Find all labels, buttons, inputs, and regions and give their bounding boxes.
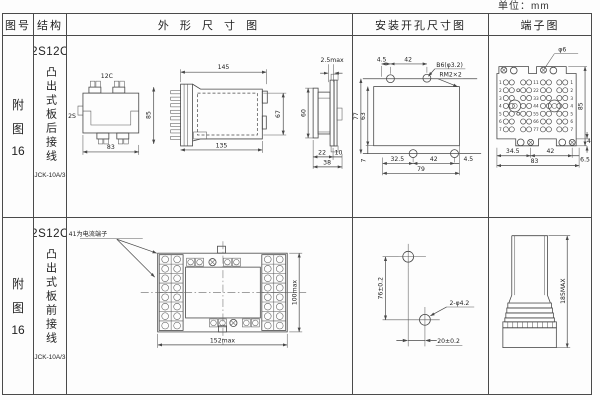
terminal-row-number-right: 6 [570,119,573,125]
terminal-hole [521,79,526,84]
relay-profile-view: 185MAX [503,236,570,348]
dim-185max: 185MAX [560,278,567,303]
terminal-hole [509,87,514,92]
terminal-hole [540,95,545,100]
terminal-row-number-left: 2 [499,87,502,93]
fig-char: 图 [12,299,24,316]
terminal-hole [527,95,532,100]
terminal-comb [508,322,553,328]
terminal-pair-number: 55 [533,111,539,117]
terminal-row-number-left: 6 [499,119,502,125]
terminal-hole [509,79,514,84]
terminal-hole [563,118,568,123]
dim-32.5: 32.5 [391,155,405,162]
terminal-hole [509,111,514,116]
outline-row1-svg: 12C 2S 83 85 145 [67,36,352,218]
terminal-pair-number: 44 [533,103,539,109]
outline-drawing-row1: 12C 2S 83 85 145 [67,36,353,218]
terminal-hole [527,79,532,84]
callout-thread: RM2×2 [439,71,461,78]
terminal-hole [527,103,532,108]
fig-char: 附 [12,275,24,292]
datasheet-page: 单位：mm 图号 结构 外 形 尺 寸 图 安装开孔尺寸图 端子图 附 图 16… [0,0,600,400]
note-current-terminals: 31、41为电流端子 [67,230,107,238]
dim-63: 63 [360,112,367,120]
terminal-hole [540,118,545,123]
terminal-row-number-left: 4 [499,103,502,109]
dim-width-83: 83 [107,143,115,150]
terminal-hole [563,87,568,92]
terminal-hole [509,103,514,108]
terminal-hole [557,103,562,108]
header-structure: 结构 [34,14,67,36]
terminal-row-number-right: 5 [570,111,573,117]
terminal-hole [503,103,508,108]
mounting-holes-drawing: 76±0.2 2-φ4.2 20±0.2 [378,244,475,346]
relay-rear-view: 2.5max 60 22 10 3 [301,57,344,169]
terminal-hole [521,111,526,116]
terminal-hole [540,126,545,131]
terminal-hole [527,118,532,123]
dim-42-top: 42 [404,56,412,63]
terminal-hole [509,118,514,123]
header-fig-no: 图号 [3,14,34,36]
terminal-row1-svg: 1111222233334444555566667777 φ6 85 4 34.… [489,36,591,218]
terminal-hole [557,126,562,131]
terminal-hole [546,126,551,131]
terminal-pair-number: 22 [533,87,539,93]
terminal-hole [557,95,562,100]
header-outline: 外 形 尺 寸 图 [67,14,353,36]
terminal-hole [503,79,508,84]
terminal-hole [527,111,532,116]
dim-2.5max: 2.5max [320,57,344,64]
terminal-hole [563,79,568,84]
terminal-pair-number: 77 [533,127,539,133]
terminal-hole [557,111,562,116]
dim-38: 38 [323,159,331,166]
terminal-hole [557,79,562,84]
dim-76: 76±0.2 [378,277,385,300]
install-row1-svg: 4.5 42 B6(φ3.2) RM2×2 77 63 7 32.5 [353,36,488,218]
terminal-hole [540,87,545,92]
unit-label: 单位：mm [498,0,550,12]
fig-number: 16 [11,323,24,337]
relay-top-view: 12C 2S 83 85 [68,73,154,155]
dim-60: 60 [301,109,308,117]
terminal-pair-number: 66 [533,119,539,125]
header-install: 安装开孔尺寸图 [353,14,489,36]
label-2s: 2S [68,113,76,120]
terminal-hole [546,95,551,100]
structure-row1: 2S12C 凸出式板后接线 JCK-10A/3 [34,36,67,218]
dim-20: 20±0.2 [437,338,460,345]
terminal-hole [521,118,526,123]
wiring-type: 凸出式板前接线 [45,248,56,346]
fig-char: 附 [12,96,24,113]
terminal-hole [527,87,532,92]
fig-number-row1: 附 图 16 [3,36,34,218]
dim-42-terminal: 42 [546,148,554,155]
terminal-hole [563,126,568,131]
terminal-hole [546,79,551,84]
terminal-hole [540,111,545,116]
terminal-hole [540,103,545,108]
terminal-hole [503,118,508,123]
install-drawing-row1: 4.5 42 B6(φ3.2) RM2×2 77 63 7 32.5 [353,36,489,218]
dim-85-terminal: 85 [578,102,585,110]
dim-4.5-bottom: 4.5 [463,155,473,162]
callout-2-holes: 2-φ4.2 [450,300,470,307]
product-code: JCK-10A/3 [34,354,65,360]
dim-22: 22 [318,149,326,156]
install-drawing-row2: 76±0.2 2-φ4.2 20±0.2 [353,218,489,394]
terminal-pair-number: 33 [533,95,539,101]
terminal-grid: 1111222233334444555566667777 [499,79,573,132]
terminal-row-number-right: 4 [570,103,573,109]
terminal-block-outline: 1111222233334444555566667777 φ6 85 4 34.… [497,46,591,167]
relay-front-view: 31、41为电流端子 [67,230,306,348]
fig-char: 图 [12,120,24,137]
terminal-hole [509,95,514,100]
terminal-row-number-right: 1 [570,80,573,86]
terminal-hole [563,95,568,100]
dim-135: 135 [216,142,228,149]
product-code: JCK-10A/3 [34,172,65,178]
dim-6.5: 6.5 [580,156,590,163]
dim-145: 145 [218,64,230,71]
install-row2-svg: 76±0.2 2-φ4.2 20±0.2 [353,218,488,394]
terminal-hole-small [517,88,520,91]
terminal-hole [521,126,526,131]
dim-42-bottom: 42 [430,155,438,162]
terminal-hole [503,111,508,116]
terminal-row-number-right: 2 [570,87,573,93]
terminal-pins [171,90,181,139]
terminal-row-number-left: 5 [499,111,502,117]
panel-cutout-drawing: 4.5 42 B6(φ3.2) RM2×2 77 63 7 32.5 [353,56,481,175]
terminal-diagram-row2: 185MAX [489,218,591,394]
spec-table: 图号 结构 外 形 尺 寸 图 安装开孔尺寸图 端子图 附 图 16 2S12C… [2,13,592,395]
dim-67: 67 [275,110,282,118]
terminal-row-number-right: 3 [570,95,573,101]
terminal-hole [546,87,551,92]
terminal-hole [563,111,568,116]
terminal-row-number-left: 3 [499,95,502,101]
terminal-hole [557,87,562,92]
terminal-hole [546,118,551,123]
terminal-hole [521,95,526,100]
terminal-hole [503,87,508,92]
dim-7: 7 [360,158,367,162]
terminal-hole [521,103,526,108]
terminal-row-number-right: 7 [570,127,573,133]
dim-83-terminal: 83 [531,158,539,165]
header-terminal: 端子图 [489,14,591,36]
dim-4-offset: 4 [587,137,591,144]
terminal-hole [509,126,514,131]
callout-hole: B6(φ3.2) [436,61,463,68]
label-12c: 12C [101,73,113,80]
terminal-hole [521,87,526,92]
outline-row2-svg: 31、41为电流端子 [67,218,352,394]
wiring-type: 凸出式板后接线 [45,66,56,164]
model-code: 2S12C [34,46,67,58]
terminal-hole [503,95,508,100]
model-code: 2S12C [34,228,67,240]
terminal-hole [563,103,568,108]
terminal-hole-small [517,112,520,115]
terminal-row-number-left: 1 [499,80,502,86]
terminal-hole [540,79,545,84]
callout-screw: φ6 [558,46,566,53]
terminal-hole [527,126,532,131]
dim-152max: 152max [210,337,236,344]
terminal-row2-svg: 185MAX [489,218,591,394]
fig-number-row2: 附 图 16 [3,218,34,394]
terminal-pair-number: 11 [533,80,539,86]
fig-number: 16 [11,144,24,158]
outline-drawing-row2: 31、41为电流端子 [67,218,353,394]
terminal-row-number-left: 7 [499,127,502,133]
relay-side-view: 145 135 [171,64,287,153]
dim-4.5-top: 4.5 [377,56,387,63]
terminal-hole [557,118,562,123]
dim-10: 10 [335,149,343,156]
terminal-diagram-row1: 1111222233334444555566667777 φ6 85 4 34.… [489,36,591,218]
dim-height-85: 85 [146,111,153,119]
terminal-hole [503,126,508,131]
terminal-hole [546,111,551,116]
structure-row2: 2S12C 凸出式板前接线 JCK-10A/3 [34,218,67,394]
dim-79: 79 [417,165,425,172]
dim-100max: 100max [292,280,299,306]
dim-34.5: 34.5 [506,148,520,155]
